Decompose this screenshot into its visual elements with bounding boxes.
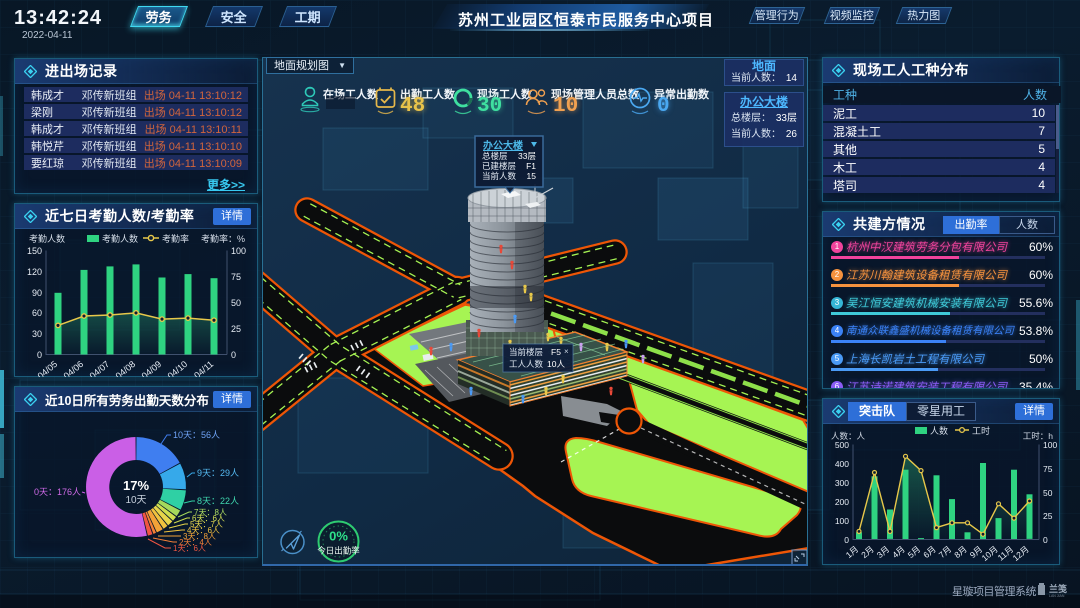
- svg-text:30: 30: [32, 329, 42, 339]
- svg-text:2月: 2月: [859, 544, 876, 560]
- svg-text:工时: 工时: [972, 425, 990, 436]
- svg-text:50: 50: [1043, 488, 1053, 498]
- svg-text:1天：6人: 1天：6人: [173, 544, 206, 553]
- svg-text:工人人数: 工人人数: [509, 359, 544, 369]
- svg-text:×: ×: [564, 347, 569, 356]
- svg-text:10人: 10人: [547, 359, 565, 369]
- svg-text:8天：22人: 8天：22人: [197, 496, 239, 506]
- svg-text:150: 150: [27, 246, 42, 256]
- svg-text:总楼层: 总楼层: [482, 151, 508, 161]
- svg-text:90: 90: [32, 288, 42, 298]
- svg-text:25: 25: [1043, 511, 1053, 521]
- svg-text:0%: 0%: [329, 529, 348, 544]
- svg-text:兰笺: 兰笺: [1049, 583, 1067, 594]
- svg-text:04/11: 04/11: [192, 359, 215, 377]
- svg-text:50: 50: [231, 298, 241, 308]
- svg-text:人数: 人数: [930, 425, 948, 436]
- svg-text:当前人数: 当前人数: [482, 171, 517, 181]
- svg-text:500: 500: [835, 440, 849, 450]
- svg-text:17%: 17%: [123, 478, 149, 493]
- svg-text:100: 100: [1043, 440, 1057, 450]
- svg-text:04/10: 04/10: [166, 359, 190, 377]
- svg-text:300: 300: [835, 478, 849, 488]
- svg-text:3月: 3月: [875, 544, 892, 560]
- svg-text:5月: 5月: [906, 544, 923, 560]
- svg-text:33层: 33层: [518, 151, 536, 161]
- svg-text:04/06: 04/06: [62, 359, 86, 377]
- svg-text:9天：29人: 9天：29人: [197, 468, 239, 478]
- svg-text:F5: F5: [551, 347, 561, 357]
- svg-text:60: 60: [32, 308, 42, 318]
- svg-text:6月: 6月: [921, 544, 938, 560]
- svg-text:今日出勤率: 今日出勤率: [317, 546, 360, 556]
- svg-text:100: 100: [835, 516, 849, 526]
- svg-text:15: 15: [527, 171, 537, 181]
- svg-text:100: 100: [231, 246, 246, 256]
- svg-text:考勤人数: 考勤人数: [102, 233, 138, 244]
- svg-text:LAN JIAN: LAN JIAN: [1049, 594, 1065, 598]
- svg-text:400: 400: [835, 459, 849, 469]
- svg-text:200: 200: [835, 497, 849, 507]
- svg-text:0: 0: [231, 350, 236, 360]
- svg-text:考勤人数: 考勤人数: [29, 233, 65, 244]
- svg-text:10天：56人: 10天：56人: [173, 430, 220, 440]
- svg-text:25: 25: [231, 324, 241, 334]
- svg-text:F1: F1: [526, 161, 536, 171]
- svg-text:10天: 10天: [125, 495, 146, 506]
- svg-text:考勤率: 考勤率: [162, 233, 189, 244]
- svg-text:04/07: 04/07: [88, 359, 112, 377]
- svg-text:已建楼层: 已建楼层: [482, 161, 516, 171]
- svg-text:7月: 7月: [937, 544, 954, 560]
- svg-text:0: 0: [844, 535, 849, 545]
- svg-text:1月: 1月: [844, 544, 861, 560]
- svg-text:04/05: 04/05: [36, 359, 60, 377]
- svg-text:考勤率：%: 考勤率：%: [201, 233, 245, 244]
- svg-text:75: 75: [1043, 464, 1053, 474]
- svg-text:120: 120: [27, 267, 42, 277]
- svg-text:8月: 8月: [952, 544, 969, 560]
- svg-text:04/08: 04/08: [114, 359, 138, 377]
- svg-text:12月: 12月: [1011, 544, 1031, 563]
- svg-text:0: 0: [37, 350, 42, 360]
- svg-text:当前楼层: 当前楼层: [509, 347, 543, 357]
- svg-text:0天：176人: 0天：176人: [34, 487, 81, 497]
- svg-text:75: 75: [231, 272, 241, 282]
- svg-text:0: 0: [1043, 535, 1048, 545]
- svg-text:04/09: 04/09: [140, 359, 164, 377]
- svg-text:4月: 4月: [890, 544, 907, 560]
